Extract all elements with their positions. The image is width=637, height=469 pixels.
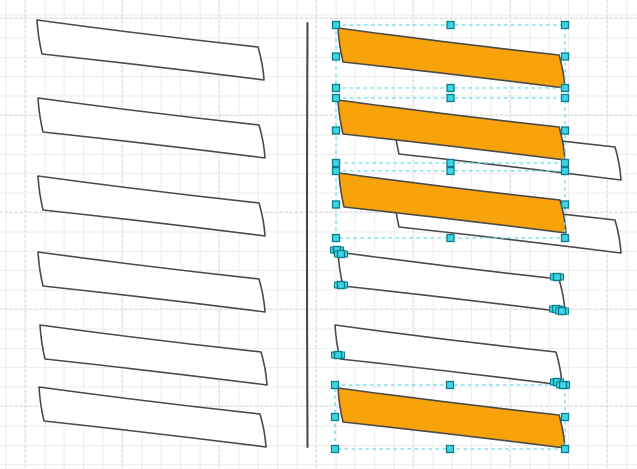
parallelogram-shape-white[interactable]	[38, 252, 265, 312]
canvas-svg	[0, 0, 637, 469]
selection-handle[interactable]	[333, 201, 340, 208]
selection-handle[interactable]	[333, 168, 340, 175]
selection-handle[interactable]	[562, 53, 569, 60]
selection-handle[interactable]	[562, 235, 569, 242]
parallelogram-shape-white[interactable]	[40, 325, 267, 385]
selection-handle[interactable]	[332, 414, 339, 421]
parallelogram-shape-orange[interactable]	[338, 388, 565, 448]
selection-handle[interactable]	[562, 446, 569, 453]
selection-handle[interactable]	[562, 201, 569, 208]
parallelogram-shape-white[interactable]	[338, 252, 565, 312]
selection-handle[interactable]	[447, 22, 454, 29]
selection-handle[interactable]	[447, 382, 454, 389]
selection-handle[interactable]	[447, 446, 454, 453]
selection-handle[interactable]	[562, 414, 569, 421]
selection-handle[interactable]	[562, 168, 569, 175]
selection-handle[interactable]	[333, 235, 340, 242]
parallelogram-shape-white[interactable]	[335, 325, 562, 385]
selection-handle[interactable]	[562, 160, 569, 167]
selection-handle[interactable]	[562, 95, 569, 102]
selection-handle[interactable]	[562, 22, 569, 29]
terminal-handle[interactable]	[559, 308, 566, 315]
selection-handle[interactable]	[447, 85, 454, 92]
selection-handle[interactable]	[332, 446, 339, 453]
selection-handle[interactable]	[333, 160, 340, 167]
selection-handle[interactable]	[333, 22, 340, 29]
selection-handle[interactable]	[333, 53, 340, 60]
selection-handle[interactable]	[447, 235, 454, 242]
parallelogram-shape-white[interactable]	[38, 176, 265, 236]
selection-handle[interactable]	[332, 382, 339, 389]
terminal-handle[interactable]	[338, 282, 345, 289]
selection-handle[interactable]	[333, 95, 340, 102]
selection-handle[interactable]	[447, 168, 454, 175]
parallelogram-shape-orange[interactable]	[338, 28, 565, 88]
terminal-handle[interactable]	[335, 352, 342, 359]
selection-handle[interactable]	[447, 160, 454, 167]
parallelogram-shape-white[interactable]	[39, 387, 266, 447]
parallelogram-shape-white[interactable]	[38, 98, 265, 158]
terminal-handle[interactable]	[338, 251, 345, 258]
selection-handle[interactable]	[562, 85, 569, 92]
diagram-canvas[interactable]	[0, 0, 637, 469]
parallelogram-shape-white[interactable]	[37, 20, 264, 80]
selection-handle[interactable]	[562, 127, 569, 134]
divider-line[interactable]	[307, 23, 308, 447]
selection-handle[interactable]	[333, 85, 340, 92]
terminal-handle[interactable]	[554, 274, 561, 281]
selection-handle[interactable]	[333, 127, 340, 134]
selection-handle[interactable]	[447, 95, 454, 102]
terminal-handle[interactable]	[560, 382, 567, 389]
